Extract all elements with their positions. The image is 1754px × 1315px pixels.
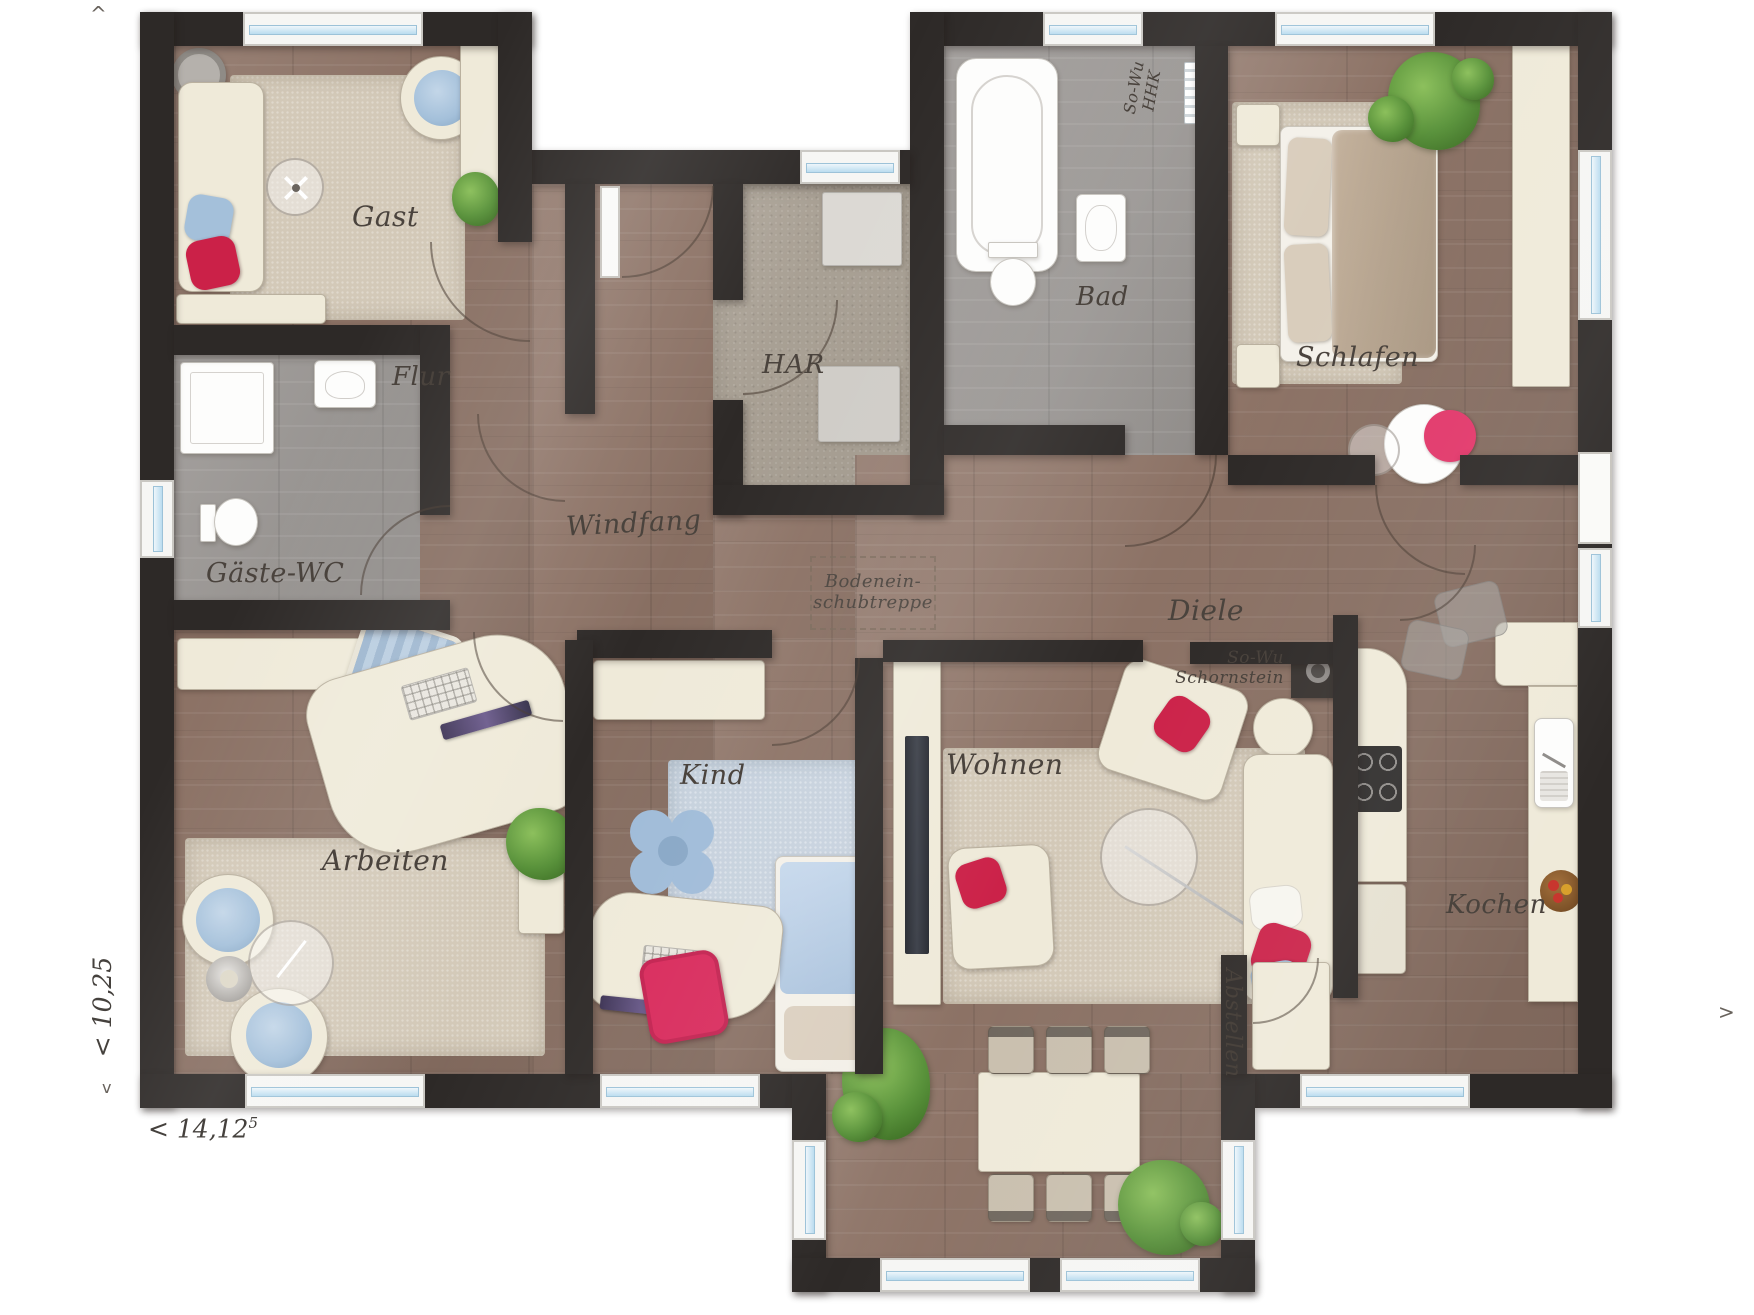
schlafen-plant-leaf — [1452, 58, 1494, 100]
bathtub-icon — [956, 58, 1058, 272]
bad-toilet-icon — [990, 258, 1036, 306]
dining-plant-left-leaf — [832, 1092, 882, 1142]
armchair-2 — [947, 843, 1055, 970]
wall-kind-left — [565, 640, 593, 1074]
room-label-kochen: Kochen — [1446, 890, 1547, 920]
window-gast — [243, 12, 423, 46]
shower-tray — [190, 372, 264, 444]
window-har — [800, 150, 900, 184]
dining-table — [978, 1072, 1140, 1172]
gast-plant-icon — [452, 172, 500, 226]
window-schlafen-top — [1275, 12, 1435, 46]
wall-wohnen-top-a — [883, 640, 1143, 662]
fruit — [1548, 880, 1559, 891]
nightstand-2 — [1236, 344, 1280, 388]
room-label-diele: Diele — [1168, 594, 1244, 627]
kind-pouf-center — [658, 836, 688, 866]
window-wc-left — [140, 480, 174, 558]
wall-wc-bottom — [174, 600, 450, 630]
bad-toilet-tank — [988, 242, 1038, 258]
floorplan: Bodenein- schubtreppe Gast Flur Gäste-WC… — [0, 0, 1754, 1315]
wall-kind-top — [577, 630, 772, 658]
dining-plant-right-leaf — [1180, 1202, 1224, 1246]
wall-bad-right — [1195, 46, 1228, 455]
window-schlafen-right — [1578, 150, 1612, 320]
dimension-height: < 10,25 — [81, 922, 125, 1092]
wall-schlafen-bottom-left — [1228, 455, 1375, 485]
wall-step-bad — [910, 12, 944, 515]
nightstand-1 — [1236, 104, 1280, 146]
wardrobe — [1512, 42, 1570, 387]
dining-chair — [1046, 1174, 1092, 1222]
room-label-flur: Flur — [392, 362, 450, 392]
wall-flur-windfang — [565, 184, 595, 414]
wall-schlafen-bottom-right — [1460, 455, 1578, 485]
wall-har-left-upper — [713, 184, 743, 300]
window-bay-right — [1221, 1140, 1255, 1240]
table-center — [292, 184, 300, 192]
wall-bad-bottom — [944, 425, 1125, 455]
window-bad — [1043, 12, 1143, 46]
fruit — [1553, 893, 1563, 903]
tv-icon — [905, 736, 929, 954]
kitchen-bar-counter — [1495, 622, 1578, 686]
arbeiten-chair-1-cushion — [196, 888, 260, 952]
dining-chair — [988, 1026, 1034, 1074]
bed-duvet — [1332, 130, 1436, 358]
wall-kochen-left — [1333, 615, 1358, 998]
dimension-width: < 14,125 — [148, 1114, 258, 1143]
attic-stair-label-line1: Bodenein- — [825, 572, 921, 593]
room-label-schlafen: Schlafen — [1296, 342, 1419, 373]
window-arbeiten — [245, 1074, 425, 1108]
bed-pillow-1 — [1283, 137, 1332, 237]
room-label-gast: Gast — [352, 200, 419, 233]
dimension-width-sup: 5 — [248, 1114, 258, 1132]
har-appliance-2 — [818, 366, 900, 442]
room-label-arbeiten: Arbeiten — [322, 844, 449, 877]
bad-sink-basin — [1085, 205, 1117, 251]
dimension-marker-top: ^ — [90, 2, 107, 26]
dimension-marker-right: > — [1718, 1000, 1735, 1024]
wc-toilet-icon — [214, 498, 258, 546]
wall-kind-right — [855, 658, 883, 1074]
dimension-width-value: < 14,12 — [148, 1114, 248, 1143]
exterior-door-right — [1578, 452, 1612, 544]
window-bar-right — [1578, 548, 1612, 628]
window-kind — [600, 1074, 760, 1108]
sink-drainboard — [1540, 771, 1568, 801]
dining-chair — [1104, 1026, 1150, 1074]
sink-basin — [325, 371, 365, 399]
wall-gast-right — [498, 12, 532, 242]
lamp-stem — [276, 940, 307, 978]
wohnen-coffee-table — [1100, 808, 1198, 906]
kind-cabinet — [593, 660, 765, 720]
wall-left — [140, 12, 174, 1108]
bad-sink-icon — [1076, 194, 1126, 262]
fruit — [1561, 884, 1572, 895]
schlafen-plant-leaf — [1368, 96, 1414, 142]
wohnen-side-disc — [1253, 698, 1313, 758]
kitchen-sink-icon — [1534, 718, 1574, 808]
faucet-icon — [1542, 753, 1566, 769]
window-kochen — [1300, 1074, 1470, 1108]
dining-chair — [1046, 1026, 1092, 1074]
attic-stair-label-line2: schubtreppe — [813, 593, 933, 614]
kind-chair-icon — [637, 948, 731, 1047]
dining-chair — [988, 1174, 1034, 1222]
dimension-marker-bottom: v — [102, 1078, 111, 1097]
window-bay-bottom-1 — [880, 1258, 1030, 1292]
disc-center — [220, 970, 238, 988]
shower-icon — [180, 362, 274, 454]
arbeiten-chair-2-cushion — [246, 1002, 312, 1068]
bathtub-basin — [971, 75, 1043, 255]
wall-wc-right — [420, 325, 450, 515]
wall-wc-top — [174, 325, 420, 355]
gast-coffee-table — [266, 158, 324, 216]
room-label-kind: Kind — [680, 760, 745, 791]
attic-stair-outline: Bodenein- schubtreppe — [810, 556, 936, 630]
gast-sideboard — [176, 294, 326, 324]
window-bay-left — [792, 1140, 826, 1240]
room-label-bad: Bad — [1076, 282, 1129, 312]
chimney-note-line1: So-Wu — [1152, 648, 1284, 668]
window-bay-bottom-2 — [1060, 1258, 1200, 1292]
room-label-har: HAR — [762, 350, 825, 380]
chimney-note-line2: Schornstein — [1152, 668, 1284, 688]
wall-har-bottom — [713, 485, 944, 515]
entrance-door-leaf — [600, 186, 620, 278]
chimney-note: So-Wu Schornstein — [1152, 648, 1284, 694]
side-disc-table — [206, 956, 252, 1002]
arbeiten-glass-table — [248, 920, 334, 1006]
har-appliance-1 — [822, 192, 902, 266]
bed-pillow-2 — [1283, 243, 1332, 343]
room-label-abstellen: Abstellen — [1217, 963, 1247, 1083]
wc-sink-icon — [314, 360, 376, 408]
room-label-gaeste-wc: Gäste-WC — [206, 558, 344, 589]
room-label-wohnen: Wohnen — [946, 748, 1063, 781]
